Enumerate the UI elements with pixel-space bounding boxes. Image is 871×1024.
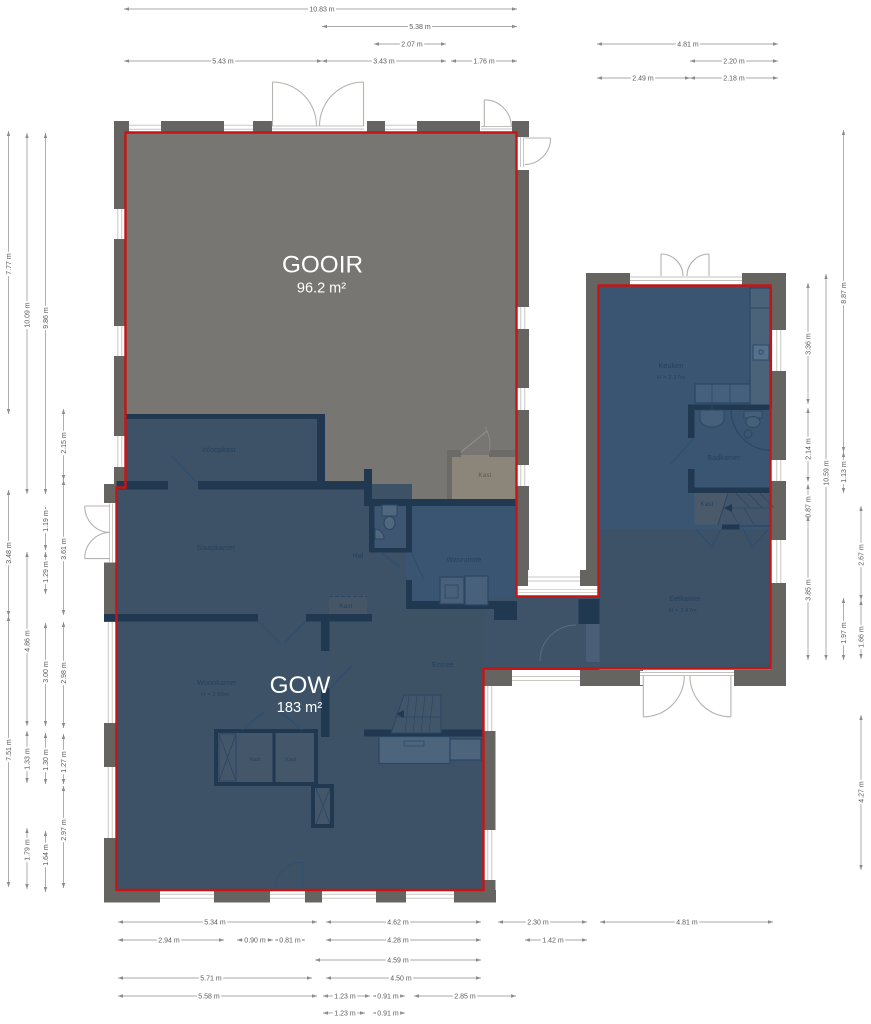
svg-text:H = 2.60m: H = 2.60m <box>201 692 229 698</box>
svg-text:10.83 m: 10.83 m <box>309 6 334 13</box>
svg-text:0.81 m: 0.81 m <box>279 937 301 944</box>
svg-text:4.62 m: 4.62 m <box>387 919 409 926</box>
svg-text:4.81 m: 4.81 m <box>676 919 698 926</box>
svg-text:2.30 m: 2.30 m <box>527 919 549 926</box>
svg-text:10.09 m: 10.09 m <box>24 302 31 327</box>
svg-text:7.51 m: 7.51 m <box>6 739 13 761</box>
svg-text:0.90 m: 0.90 m <box>244 937 266 944</box>
svg-text:5.58 m: 5.58 m <box>198 993 220 1000</box>
svg-text:2.18 m: 2.18 m <box>723 75 745 82</box>
svg-text:Kast: Kast <box>249 757 261 763</box>
svg-text:3.48 m: 3.48 m <box>6 542 13 564</box>
svg-text:2.97 m: 2.97 m <box>61 819 68 841</box>
svg-text:2.20 m: 2.20 m <box>723 58 745 65</box>
svg-text:8.87 m: 8.87 m <box>841 282 848 304</box>
svg-text:1.66 m: 1.66 m <box>858 626 865 648</box>
svg-text:Kast: Kast <box>339 603 352 610</box>
svg-text:Kast: Kast <box>700 501 713 508</box>
svg-text:Woonkamer: Woonkamer <box>197 680 237 687</box>
svg-text:GOW: GOW <box>270 672 331 699</box>
svg-text:5.34 m: 5.34 m <box>204 919 226 926</box>
svg-text:3.43 m: 3.43 m <box>373 58 395 65</box>
svg-text:4.28 m: 4.28 m <box>387 937 409 944</box>
svg-text:4.27 m: 4.27 m <box>858 781 865 803</box>
svg-text:1.13 m: 1.13 m <box>841 461 848 483</box>
svg-text:1.33 m: 1.33 m <box>24 748 31 770</box>
svg-text:1.30 m: 1.30 m <box>43 749 50 771</box>
svg-text:3.36 m: 3.36 m <box>805 333 812 355</box>
svg-text:1.76 m: 1.76 m <box>473 58 495 65</box>
svg-text:2.67 m: 2.67 m <box>858 544 865 566</box>
svg-text:10.59 m: 10.59 m <box>823 460 830 485</box>
svg-text:2.98 m: 2.98 m <box>61 662 68 684</box>
svg-text:5.71 m: 5.71 m <box>200 975 222 982</box>
svg-text:Badkamer: Badkamer <box>707 455 741 462</box>
svg-text:Hal: Hal <box>352 553 363 560</box>
svg-text:0.91 m: 0.91 m <box>377 993 399 1000</box>
svg-text:1.97 m: 1.97 m <box>841 622 848 644</box>
svg-text:2.14 m: 2.14 m <box>805 438 812 460</box>
svg-text:1.42 m: 1.42 m <box>542 937 564 944</box>
svg-text:1.23 m: 1.23 m <box>334 1010 356 1017</box>
svg-text:Inloopkast: Inloopkast <box>202 447 236 454</box>
svg-text:1.27 m: 1.27 m <box>61 751 68 773</box>
svg-text:1.19 m: 1.19 m <box>43 510 50 532</box>
svg-text:4.59 m: 4.59 m <box>387 957 409 964</box>
svg-text:1.23 m: 1.23 m <box>334 993 356 1000</box>
svg-text:4.86 m: 4.86 m <box>24 630 31 652</box>
svg-text:H = 2.47m: H = 2.47m <box>669 608 697 614</box>
svg-text:0.91 m: 0.91 m <box>377 1010 399 1017</box>
svg-text:3.85 m: 3.85 m <box>805 579 812 601</box>
svg-text:Kast: Kast <box>478 472 491 479</box>
svg-text:4.81 m: 4.81 m <box>677 41 699 48</box>
svg-text:9.86 m: 9.86 m <box>43 307 50 329</box>
svg-text:1.29 m: 1.29 m <box>43 561 50 583</box>
svg-text:5.43 m: 5.43 m <box>212 58 234 65</box>
svg-text:4.50 m: 4.50 m <box>390 975 412 982</box>
svg-text:183 m²: 183 m² <box>277 700 323 716</box>
svg-text:Slaapkamer: Slaapkamer <box>196 545 236 552</box>
svg-text:3.00 m: 3.00 m <box>43 661 50 683</box>
svg-text:7.77 m: 7.77 m <box>6 253 13 275</box>
svg-text:1.79 m: 1.79 m <box>24 839 31 861</box>
svg-text:Eetkamer: Eetkamer <box>669 596 701 603</box>
svg-text:2.07 m: 2.07 m <box>401 41 423 48</box>
svg-text:2.15 m: 2.15 m <box>61 432 68 454</box>
svg-text:3.61 m: 3.61 m <box>61 538 68 560</box>
svg-text:Entree: Entree <box>432 662 454 669</box>
svg-text:Kast: Kast <box>285 757 297 763</box>
svg-text:2.85 m: 2.85 m <box>454 993 476 1000</box>
svg-text:Wasruimte: Wasruimte <box>447 557 482 564</box>
svg-text:96.2 m²: 96.2 m² <box>297 281 346 297</box>
svg-text:Keuken: Keuken <box>659 363 684 370</box>
svg-text:1.64 m: 1.64 m <box>43 844 50 866</box>
svg-text:2.94 m: 2.94 m <box>158 937 180 944</box>
svg-text:2.49 m: 2.49 m <box>632 75 654 82</box>
svg-text:0.87 m: 0.87 m <box>805 496 812 518</box>
svg-text:5.38 m: 5.38 m <box>409 24 431 31</box>
svg-text:GOOIR: GOOIR <box>282 252 363 279</box>
svg-text:H = 2.27m: H = 2.27m <box>657 375 685 381</box>
